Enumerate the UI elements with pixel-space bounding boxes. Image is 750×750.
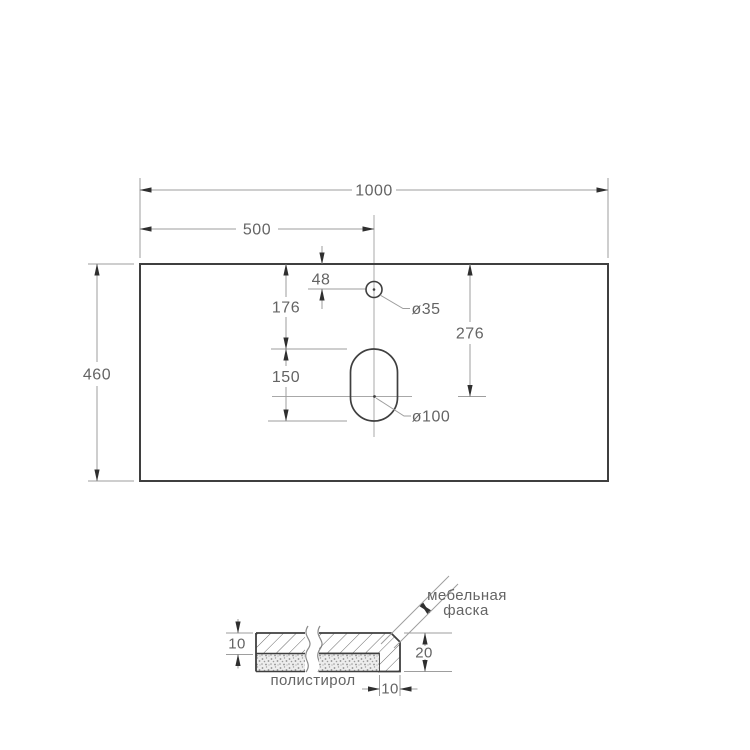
label-bowl-diameter: ø100 xyxy=(412,409,450,426)
dim-top-thickness: 10 xyxy=(228,636,246,653)
dim-width: 1000 xyxy=(355,183,393,200)
bowl-hole-center xyxy=(373,395,376,398)
dim-edge-width: 10 xyxy=(381,681,399,698)
dim-bowl-top-offset: 176 xyxy=(272,300,300,317)
countertop-drawing: 1000 500 460 48 176 150 276 ø35 ø100 xyxy=(0,0,750,750)
dim-center-offset: 500 xyxy=(243,222,271,239)
dim-edge-height: 20 xyxy=(415,645,433,662)
faucet-hole-center xyxy=(373,288,376,291)
dim-depth: 460 xyxy=(83,367,111,384)
dim-bowl-length: 150 xyxy=(272,369,300,386)
dim-faucet-offset: 48 xyxy=(312,272,331,289)
section-right-part xyxy=(319,633,400,672)
filler-label: полистирол xyxy=(270,672,355,689)
faucet-hole xyxy=(366,282,410,309)
technical-drawing-page: 1000 500 460 48 176 150 276 ø35 ø100 xyxy=(0,0,750,750)
section-view: 10 20 10 мебельная фаска полистирол xyxy=(226,576,507,698)
bowl-hole-leader xyxy=(376,398,411,416)
section-left-part xyxy=(256,633,305,672)
extension-lines xyxy=(88,178,608,481)
chamfer-label-line2: фаска xyxy=(443,602,489,619)
bowl-hole xyxy=(351,349,412,421)
label-faucet-diameter: ø35 xyxy=(411,301,440,318)
top-view: 1000 500 460 48 176 150 276 ø35 ø100 xyxy=(83,178,608,481)
dimension-lines xyxy=(97,190,608,481)
faucet-hole-leader xyxy=(380,295,410,309)
dim-bowl-center-offset: 276 xyxy=(456,326,484,343)
